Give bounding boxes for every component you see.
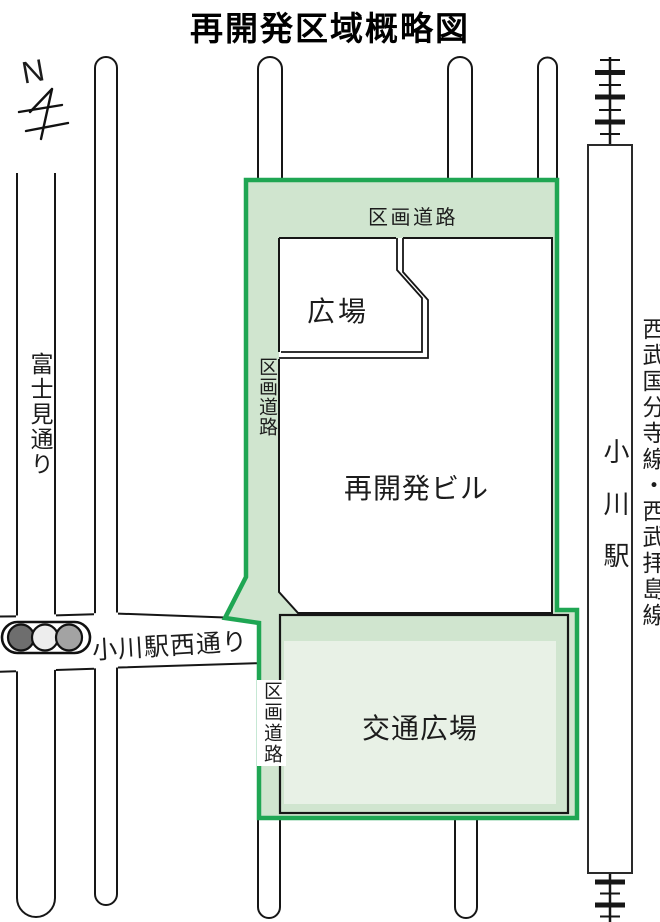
district-road-bottom-label: 区画道路 xyxy=(257,680,286,766)
map-title: 再開発区域概略図 xyxy=(0,2,660,50)
plaza-label: 広場 xyxy=(307,290,369,330)
transport-plaza-label: 交通広場 xyxy=(362,707,478,747)
map-drawing xyxy=(0,0,660,922)
fujimi-street-label: 富士見通り xyxy=(23,352,57,477)
traffic-light-icon xyxy=(2,622,90,653)
district-road-top-label: 区画道路 xyxy=(368,201,458,230)
redevelopment-building-label: 再開発ビル xyxy=(344,467,489,507)
redevelopment-map: 再開発区域概略図 N 富士見通り 小川駅西通り 区画道路 区画道路 区画道路 広… xyxy=(0,0,660,922)
district-road-left-label: 区画道路 xyxy=(253,357,280,437)
station-name-label: 小川駅 xyxy=(597,438,634,594)
railway-line-label: 西武国分寺線・西武拝島線 xyxy=(635,317,660,629)
